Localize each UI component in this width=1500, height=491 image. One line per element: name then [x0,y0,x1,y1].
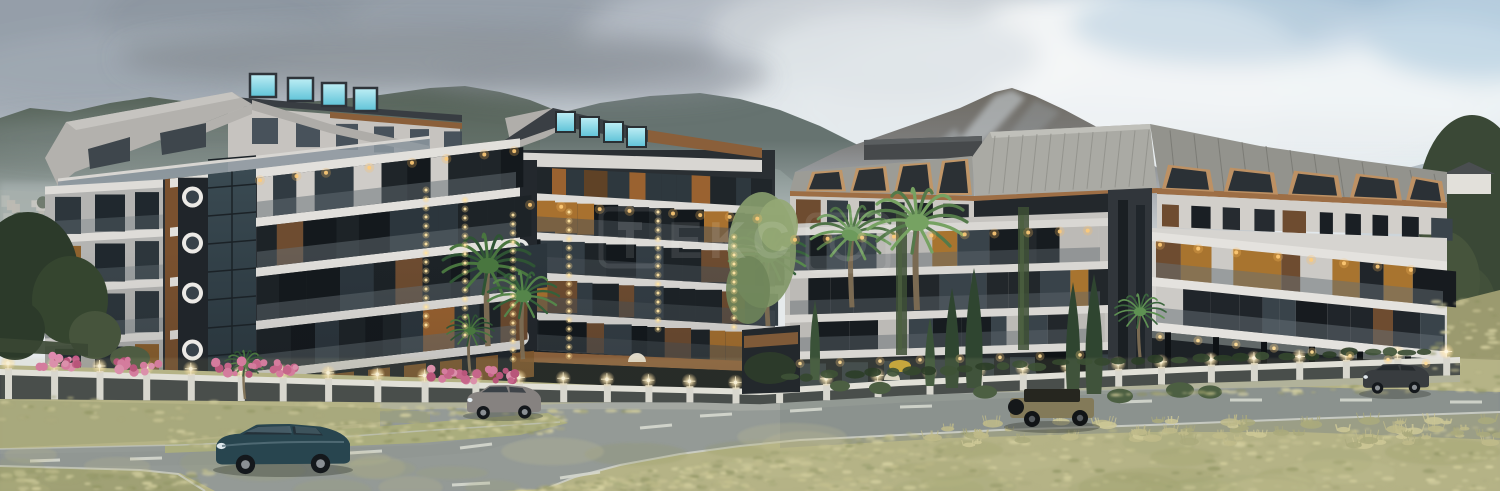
svg-text:EKC: EKC [668,212,796,270]
